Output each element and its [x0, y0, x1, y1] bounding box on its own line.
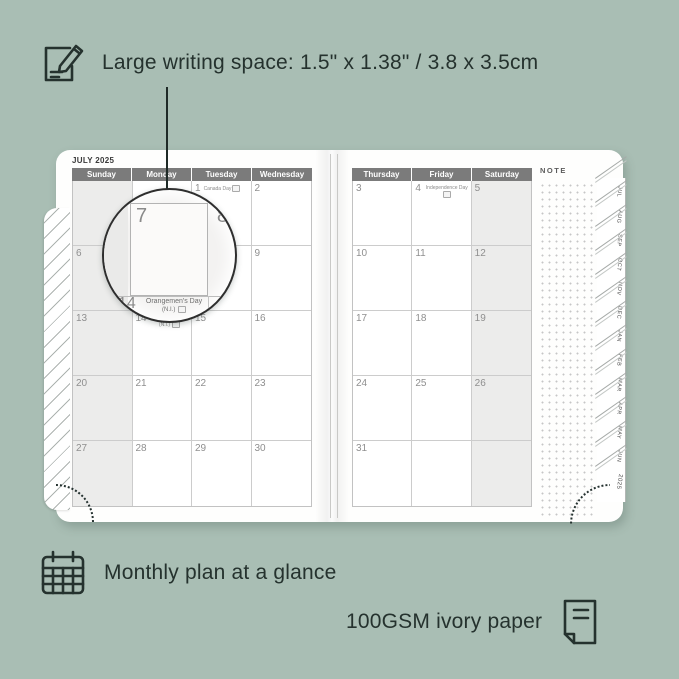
pencil-note-icon	[40, 38, 86, 88]
day-number: 6	[76, 248, 82, 259]
note-dot-grid	[537, 180, 595, 519]
calendar-cell: 22	[192, 376, 252, 441]
calendar-cell: 18	[412, 311, 471, 376]
day-number: 2	[255, 183, 261, 194]
calendar-cell: 28	[133, 441, 193, 506]
day-number: 24	[356, 378, 367, 389]
day-number: 26	[475, 378, 486, 389]
day-number: 31	[356, 443, 367, 454]
calendar-cell: 30	[252, 441, 312, 506]
flag-icon	[232, 185, 240, 192]
product-infographic: Large writing space: 1.5" x 1.38" / 3.8 …	[0, 0, 679, 679]
magnified-day-number: 7	[136, 205, 147, 228]
day-number: 1	[195, 183, 201, 194]
month-tabs: JULAUGSEPOCTNOVDECJANFEBMARAPRMAYJUN2025	[597, 178, 627, 508]
holiday-label: Canada Day	[204, 185, 241, 192]
day-number: 27	[76, 443, 87, 454]
calendar-cell	[472, 441, 531, 506]
magnified-holiday-label: Orangemen's Day (N.I.)	[136, 298, 212, 314]
notebook-spine	[315, 150, 349, 522]
calendar-cell: 17	[353, 311, 412, 376]
day-number: 5	[475, 183, 481, 194]
calendar-cell: 11	[412, 246, 471, 311]
day-header: Saturday	[472, 168, 532, 181]
right-day-header-row: ThursdayFridaySaturday	[352, 168, 532, 181]
magnifier-circle: 7 8 14 Orangemen's Day (N.I.)	[102, 188, 237, 323]
day-number: 3	[356, 183, 362, 194]
paper-annotation: 100GSM ivory paper	[346, 596, 602, 648]
day-header: Sunday	[72, 168, 132, 181]
calendar-cell: 23	[252, 376, 312, 441]
note-label: NOTE	[540, 166, 567, 175]
calendar-cell: 19	[472, 311, 531, 376]
day-header: Wednesday	[252, 168, 312, 181]
calendar-cell: 16	[252, 311, 312, 376]
day-number: 21	[136, 378, 147, 389]
callout-line	[166, 87, 168, 190]
left-day-header-row: SundayMondayTuesdayWednesday	[72, 168, 312, 181]
magnified-day-number: 14	[118, 295, 136, 313]
paper-sheet-icon	[556, 596, 602, 648]
day-header: Friday	[412, 168, 472, 181]
day-number: 10	[356, 248, 367, 259]
day-header: Tuesday	[192, 168, 252, 181]
day-number: 30	[255, 443, 266, 454]
day-number: 13	[76, 313, 87, 324]
day-number: 19	[475, 313, 486, 324]
calendar-cell: 2	[252, 181, 312, 246]
day-number: 20	[76, 378, 87, 389]
monthly-annotation-label: Monthly plan at a glance	[104, 561, 336, 585]
calendar-cell: 5	[472, 181, 531, 246]
day-header: Monday	[132, 168, 192, 181]
day-header: Thursday	[352, 168, 412, 181]
paper-annotation-label: 100GSM ivory paper	[346, 610, 542, 634]
holiday-name: Orangemen's Day	[136, 298, 212, 306]
day-number: 22	[195, 378, 206, 389]
day-number: 16	[255, 313, 266, 324]
day-number: 18	[415, 313, 426, 324]
calendar-grid-icon	[38, 548, 88, 598]
page-edge-hatching	[44, 208, 70, 510]
day-number: 4	[415, 183, 421, 194]
right-month-grid: 34Independence Day510111217181924252631	[352, 181, 532, 507]
holiday-region: (N.I.)	[136, 306, 212, 314]
calendar-cell: 9	[252, 246, 312, 311]
day-number: 9	[255, 248, 261, 259]
calendar-cell: 26	[472, 376, 531, 441]
flag-icon	[443, 191, 451, 198]
spine-line	[330, 154, 331, 518]
day-number: 25	[415, 378, 426, 389]
calendar-cell: 20	[73, 376, 133, 441]
calendar-cell: 24	[353, 376, 412, 441]
day-number: 29	[195, 443, 206, 454]
month-title: JULY 2025	[72, 156, 114, 165]
calendar-cell: 12	[472, 246, 531, 311]
calendar-cell: 15	[192, 311, 252, 376]
calendar-cell: 31	[353, 441, 412, 506]
day-number: 28	[136, 443, 147, 454]
flag-icon	[178, 306, 186, 313]
calendar-cell: 3	[353, 181, 412, 246]
calendar-cell	[412, 441, 471, 506]
holiday-label: Independence Day	[424, 185, 470, 198]
calendar-cell: 29	[192, 441, 252, 506]
calendar-cell: 4Independence Day	[412, 181, 471, 246]
top-annotation: Large writing space: 1.5" x 1.38" / 3.8 …	[40, 38, 538, 88]
top-annotation-label: Large writing space: 1.5" x 1.38" / 3.8 …	[102, 51, 538, 75]
day-number: 17	[356, 313, 367, 324]
calendar-cell: 25	[412, 376, 471, 441]
day-number: 23	[255, 378, 266, 389]
calendar-cell: 21	[133, 376, 193, 441]
magnified-day-number: 8	[217, 205, 228, 228]
day-number: 11	[415, 248, 425, 259]
calendar-cell: 10	[353, 246, 412, 311]
day-number: 12	[475, 248, 486, 259]
spine-line	[337, 154, 338, 518]
monthly-annotation: Monthly plan at a glance	[38, 548, 336, 598]
year-tab-label: 2025	[615, 474, 623, 490]
